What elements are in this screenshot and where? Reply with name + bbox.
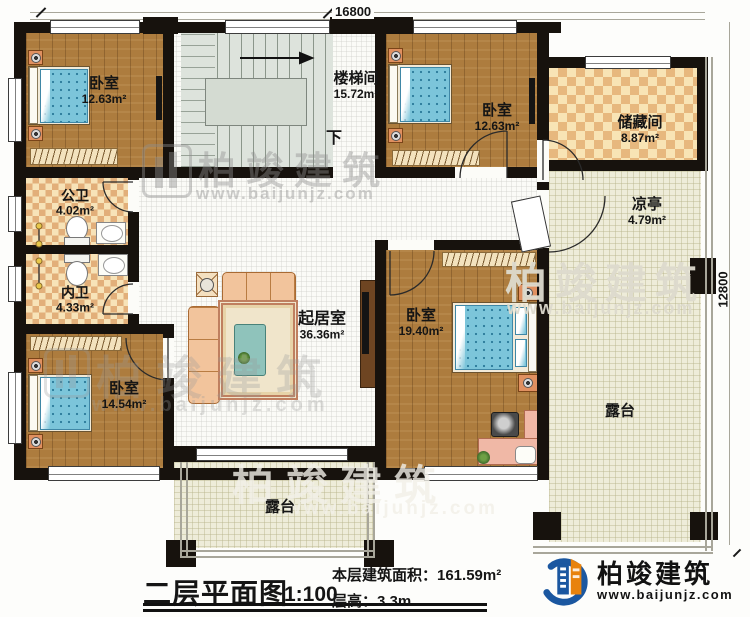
- corner-tick-logo: [733, 549, 741, 557]
- lamp-table: [196, 272, 218, 297]
- closet: [30, 336, 122, 351]
- mattress: [400, 67, 450, 122]
- wall-bath-bottom: [14, 324, 174, 334]
- room-label-bath-public: 公卫 4.02m²: [56, 188, 94, 217]
- room-label-pavilion: 凉亭 4.79m²: [628, 197, 666, 227]
- terrace-rail: [367, 462, 369, 558]
- headboard: [29, 375, 38, 431]
- nightstand: [518, 374, 538, 392]
- door-opening-bedroomTR: [455, 167, 507, 178]
- pillow: [515, 339, 527, 367]
- terrace-rail: [373, 462, 375, 558]
- mattress: [40, 377, 90, 430]
- nightstand: [28, 434, 43, 449]
- title-underline: [143, 609, 487, 612]
- closet: [442, 252, 536, 267]
- door-opening-bath-private: [128, 282, 139, 314]
- computer-monitor: [491, 412, 519, 437]
- window: [424, 466, 538, 481]
- sink-bowl: [103, 257, 125, 274]
- room-label-bedroom-bottomleft: 卧室 14.54m²: [102, 381, 147, 411]
- floor-height-text: 层高：3.3m: [332, 590, 411, 611]
- bed: [388, 64, 452, 124]
- terrace-column: [533, 512, 561, 540]
- mattress: [455, 305, 513, 370]
- wall-stair-bottom: [163, 167, 333, 178]
- room-label-living: 起居室 36.36m²: [298, 310, 346, 341]
- window: [413, 20, 517, 34]
- wall-pier: [330, 17, 413, 34]
- tv: [362, 292, 369, 354]
- stair-landing: [205, 78, 307, 126]
- pavilion-terrace-floor: [549, 171, 701, 542]
- tv-panel: [156, 76, 162, 120]
- room-label-terrace-bottom: 露台: [265, 500, 295, 517]
- terrace-column: [690, 512, 718, 540]
- nightstand: [518, 284, 538, 301]
- plant: [477, 451, 490, 464]
- bed: [28, 374, 92, 432]
- pillow: [515, 307, 527, 335]
- door-opening-bath-public: [128, 180, 139, 212]
- terrace-rail: [180, 556, 375, 558]
- nightstand: [388, 48, 403, 63]
- stair-down-label: 下: [326, 124, 342, 148]
- nightstand: [28, 50, 43, 65]
- wall-master-left: [375, 240, 386, 468]
- window: [8, 196, 22, 232]
- window: [50, 20, 140, 34]
- terrace-rail: [705, 57, 707, 551]
- terrace-rail: [186, 462, 188, 558]
- window: [48, 466, 160, 481]
- door-opening-bedroomBL: [163, 338, 174, 378]
- nightstand: [388, 128, 403, 143]
- table-flowers: [238, 352, 250, 364]
- door-opening-master: [388, 240, 434, 250]
- closet: [30, 148, 118, 165]
- dimension-top: 16800: [332, 4, 374, 19]
- terrace-rail: [533, 546, 713, 548]
- title-underline: [143, 603, 487, 606]
- headboard: [29, 67, 38, 124]
- door-opening-storage: [537, 140, 549, 182]
- terrace-rail: [711, 57, 713, 551]
- sliding-door: [196, 448, 348, 461]
- sheet-title: 二层平面图: [143, 572, 288, 612]
- company-logo-url: www.baijunjz.com: [597, 587, 733, 602]
- room-label-bedroom-topleft: 卧室 12.63m²: [82, 76, 127, 106]
- sink-bowl: [101, 225, 123, 242]
- desk-chair: [515, 446, 536, 464]
- room-label-bedroom-master: 卧室 19.40m²: [399, 308, 444, 338]
- closet: [392, 150, 480, 166]
- window: [8, 372, 22, 444]
- wall-bath-divider: [14, 245, 134, 254]
- company-logo-name: 柏竣建筑: [597, 554, 713, 591]
- window: [225, 20, 330, 34]
- sofa-left: [188, 306, 220, 404]
- headboard: [528, 303, 537, 372]
- nightstand: [28, 126, 43, 141]
- floor-area-text: 本层建筑面积：161.59m²: [332, 564, 501, 585]
- coffee-table: [234, 324, 266, 376]
- corner-shelf: [524, 410, 538, 439]
- toilet: [66, 261, 88, 286]
- room-label-bath-private: 内卫 4.33m²: [56, 285, 94, 314]
- terrace-rail: [180, 462, 182, 558]
- tv-panel: [529, 78, 535, 124]
- wall-right: [537, 22, 549, 480]
- room-label-storage: 储藏间 8.87m²: [617, 115, 662, 145]
- wall-bath-top: [14, 167, 174, 178]
- room-label-terrace-right: 露台: [605, 404, 635, 421]
- headboard: [389, 65, 398, 123]
- wall-bedroomTL-stair: [163, 22, 174, 178]
- company-logo-icon: [538, 551, 592, 609]
- wall-storage-bottom: [549, 160, 708, 171]
- dimension-right: 12800: [716, 257, 731, 323]
- window: [8, 78, 22, 142]
- window: [585, 56, 671, 69]
- floor-plan-canvas: 柏竣建筑 www.baijunjz.com 柏竣建筑 www.baijunjz.…: [0, 0, 750, 617]
- window: [8, 266, 22, 302]
- bed: [452, 302, 538, 373]
- terrace-rail: [180, 550, 375, 552]
- room-label-bedroom-topright: 卧室 12.63m²: [475, 103, 520, 133]
- nightstand: [28, 358, 43, 373]
- room-label-stairwell: 楼梯间 15.72m²: [333, 71, 378, 101]
